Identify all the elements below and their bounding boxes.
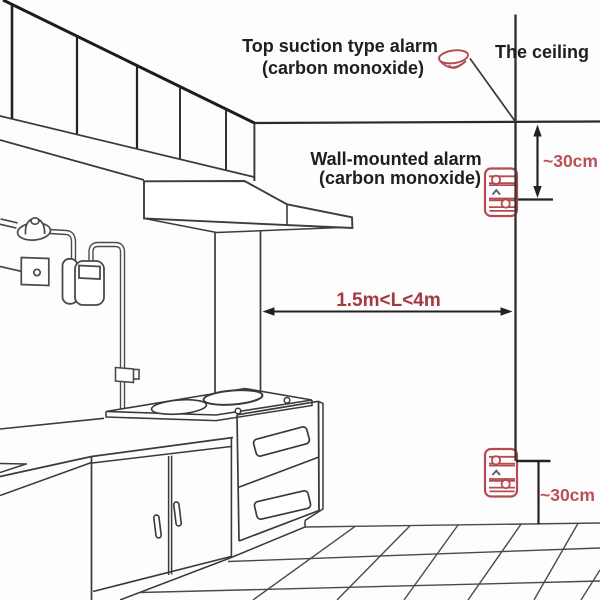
svg-text:The ceiling: The ceiling bbox=[495, 42, 589, 62]
svg-text:(carbon monoxide): (carbon monoxide) bbox=[319, 168, 481, 188]
svg-text:(carbon monoxide): (carbon monoxide) bbox=[262, 58, 424, 78]
svg-text:Top suction type alarm: Top suction type alarm bbox=[242, 36, 438, 56]
svg-text:1.5m<L<4m: 1.5m<L<4m bbox=[336, 290, 441, 311]
svg-text:Wall-mounted alarm: Wall-mounted alarm bbox=[310, 149, 481, 169]
svg-text:~30cm: ~30cm bbox=[543, 151, 598, 171]
svg-text:~30cm: ~30cm bbox=[540, 485, 595, 505]
